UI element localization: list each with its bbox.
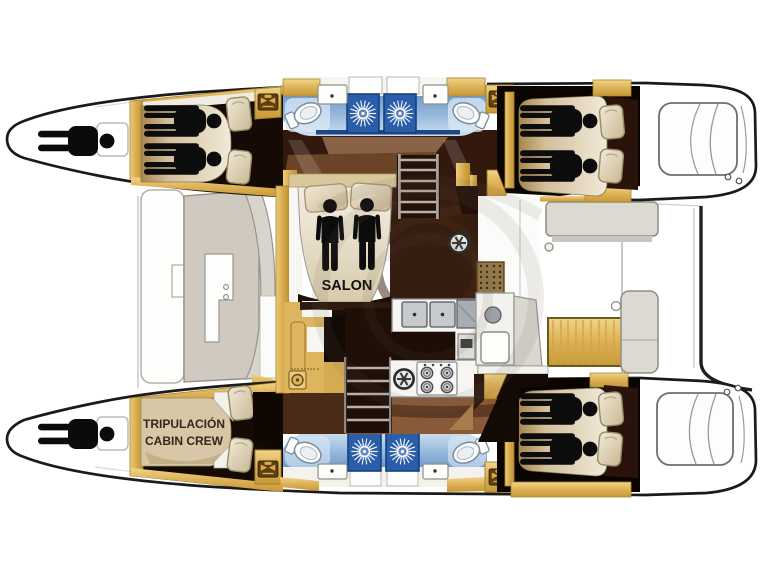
- svg-text:CABIN CREW: CABIN CREW: [145, 434, 224, 448]
- svg-text:TRIPULACIÓN: TRIPULACIÓN: [143, 416, 225, 431]
